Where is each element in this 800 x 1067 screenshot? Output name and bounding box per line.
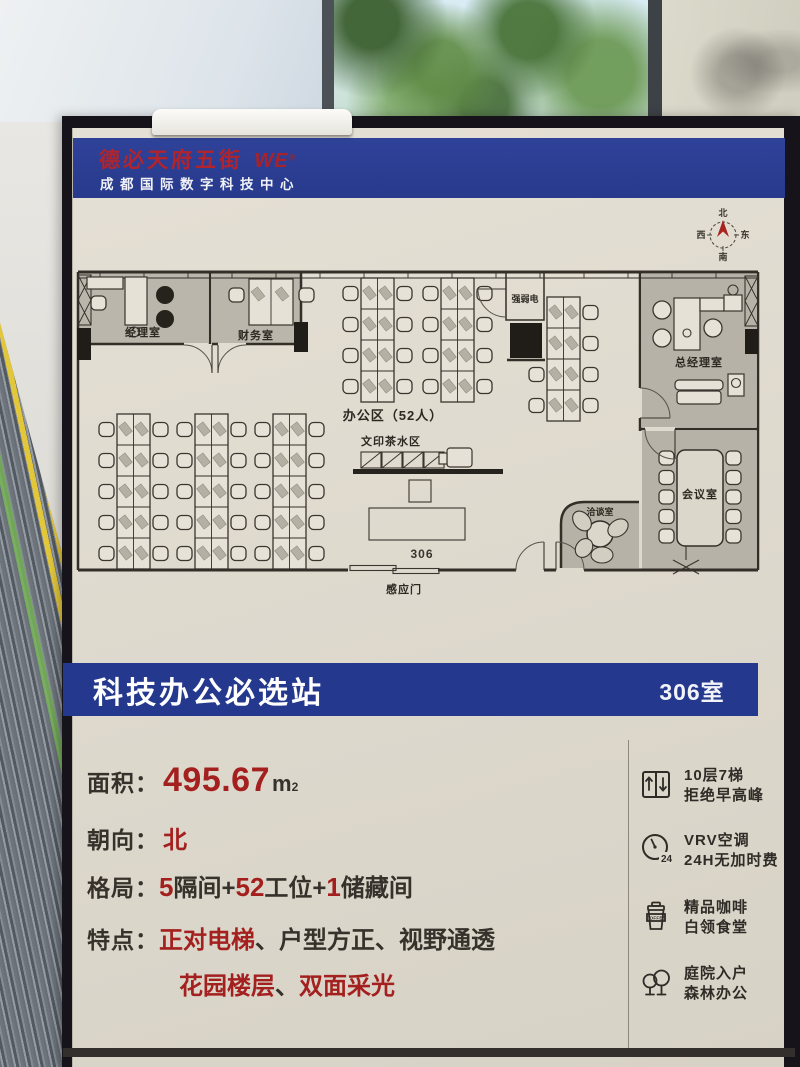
header-banner: 德必天府五街 WE® 成都国际数字科技中心 — [73, 138, 785, 198]
print-tea-label: 文印茶水区 — [361, 434, 421, 448]
registered-mark: ® — [289, 153, 296, 163]
poster-top-clip — [152, 109, 352, 135]
spec-orientation-value: 北 — [163, 820, 187, 855]
brand-logo: WE — [254, 150, 288, 172]
svg-text:24: 24 — [661, 854, 673, 865]
chair — [156, 310, 174, 328]
meeting-room-label: 会议室 — [682, 487, 718, 501]
compass-west-label: 西 — [696, 230, 705, 240]
compass-south-label: 南 — [718, 251, 727, 262]
window-scene — [0, 0, 800, 122]
amenity-vrv-ac: 24 VRV空调24H无加时费 — [639, 831, 779, 871]
open-office-label: 办公区（52人） — [343, 408, 443, 423]
window-frame — [648, 0, 662, 122]
amenity-garden: 庭院入户森林办公 — [639, 964, 748, 1004]
chair — [156, 286, 174, 304]
utility-room-label: 强弱电 — [511, 293, 538, 304]
spec-features-line2: 花园楼层、双面采光 — [179, 966, 395, 1001]
poster-bottom-rail — [63, 1048, 795, 1057]
coffee-cup-icon: COFFEE — [639, 899, 673, 933]
spec-orientation: 朝向： 北 — [87, 820, 187, 855]
spec-layout: 格局： 5隔间+52工位+1储藏间 — [87, 868, 413, 903]
sensor-door-leaf — [393, 569, 439, 574]
poster-board: 德必天府五街 WE® 成都国际数字科技中心 北 东 南 西 — [62, 116, 800, 1067]
compass-east-label: 东 — [740, 229, 749, 240]
negotiation-room-label: 洽谈室 — [586, 506, 613, 517]
title-banner-text: 科技办公必选站 — [93, 668, 324, 712]
amenity-elevator: 10层7梯拒绝早高峰 — [639, 766, 764, 806]
spec-features-line1: 特点： 正对电梯、户型方正、视野通透 — [87, 920, 495, 955]
finance-office-label: 财务室 — [237, 328, 274, 342]
gm-office-label: 总经理室 — [675, 355, 723, 369]
photo-of-floorplan-poster: 德必天府五街 WE® 成都国际数字科技中心 北 东 南 西 — [0, 0, 800, 1067]
window-frame — [322, 0, 334, 122]
amenity-coffee: COFFEE 精品咖啡白领食堂 — [639, 898, 748, 938]
brand-line: 德必天府五街 WE® — [99, 144, 295, 174]
printer — [447, 448, 472, 467]
glass-panel-reflection — [662, 0, 800, 122]
sensor-door-leaf — [350, 566, 396, 571]
compass: 北 东 南 西 — [694, 205, 752, 263]
svg-text:COFFEE: COFFEE — [646, 915, 666, 920]
sensor-door-label: 感应门 — [386, 582, 422, 596]
title-banner: 科技办公必选站 — [63, 663, 626, 716]
compass-north-label: 北 — [718, 207, 727, 218]
floor-plan: 经理室 财务室 办公区（52人） 强弱电 总经理室 文印茶水区 洽谈室 会议室 … — [73, 262, 763, 602]
print-tea-counter — [353, 448, 503, 540]
clock-24-icon: 24 — [639, 832, 673, 866]
trees-icon — [639, 965, 673, 999]
brand-name: 德必天府五街 — [99, 149, 243, 172]
spec-area-label: 面积： — [87, 764, 159, 798]
shaft-block — [510, 323, 542, 358]
trees-through-window — [334, 0, 648, 122]
poster-surface: 德必天府五街 WE® 成都国际数字科技中心 北 东 南 西 — [72, 128, 784, 1067]
spec-area: 面积： 495.67 m2 — [87, 761, 298, 800]
header-subtitle: 成都国际数字科技中心 — [100, 173, 300, 193]
room-number-badge: 306室 — [626, 663, 758, 716]
elevator-icon — [639, 767, 673, 801]
spec-area-value: 495.67 — [163, 761, 270, 800]
vertical-divider — [628, 740, 629, 1052]
room-number-label: 306 — [410, 547, 433, 561]
wall — [0, 0, 322, 122]
manager-office-label: 经理室 — [125, 325, 161, 339]
